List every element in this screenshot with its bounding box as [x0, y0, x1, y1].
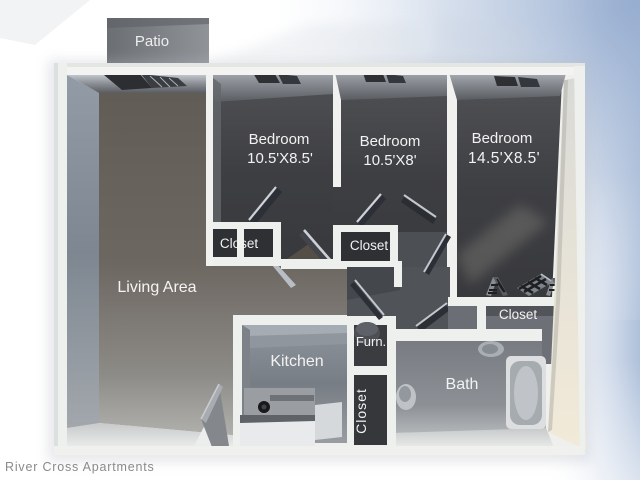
- svg-text:14.5'X8.5': 14.5'X8.5': [468, 150, 540, 167]
- svg-text:10.5'X8': 10.5'X8': [363, 152, 416, 169]
- svg-text:Closet: Closet: [499, 307, 538, 322]
- svg-text:Bedroom: Bedroom: [472, 130, 533, 147]
- svg-text:River Cross Apartments: River Cross Apartments: [5, 460, 155, 474]
- svg-text:Bath: Bath: [446, 376, 479, 393]
- svg-text:Closet: Closet: [220, 236, 259, 251]
- svg-text:Furn.: Furn.: [356, 334, 386, 349]
- svg-text:Bedroom: Bedroom: [249, 131, 310, 148]
- svg-text:Kitchen: Kitchen: [270, 353, 323, 370]
- svg-text:10.5'X8.5': 10.5'X8.5': [247, 150, 313, 167]
- svg-text:Closet: Closet: [350, 238, 389, 253]
- svg-text:Bedroom: Bedroom: [360, 133, 421, 150]
- svg-text:Closet: Closet: [353, 388, 369, 434]
- svg-text:Patio: Patio: [135, 33, 169, 50]
- svg-text:Living Area: Living Area: [117, 279, 196, 296]
